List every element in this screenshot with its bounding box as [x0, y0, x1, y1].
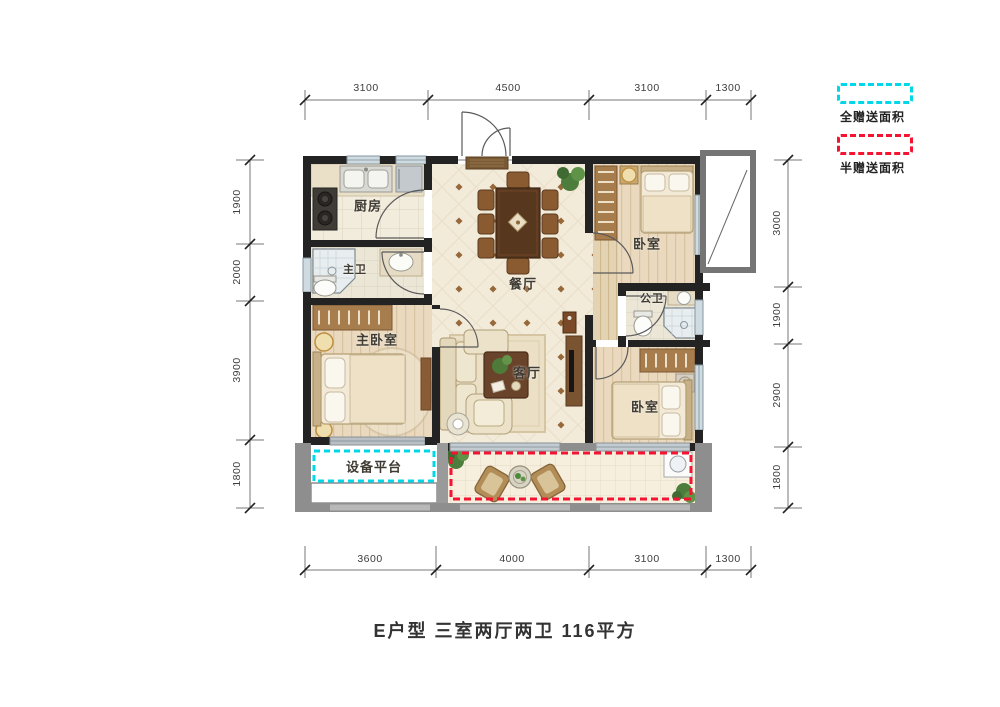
- room-label-dining: 餐厅: [509, 274, 537, 293]
- dim-left-2: 3900: [231, 357, 243, 382]
- bay-window: [703, 153, 753, 270]
- dim-right-3: 1800: [771, 464, 783, 489]
- room-label-equipment-platform: 设备平台: [346, 457, 402, 476]
- room-label-master-bath: 主卫: [343, 261, 367, 277]
- dim-bottom-2: 3100: [634, 553, 659, 565]
- dim-bottom-3: 1300: [715, 553, 740, 565]
- room-label-bedroom-top: 卧室: [633, 234, 661, 253]
- dim-top-0: 3100: [353, 82, 378, 94]
- dim-top-2: 3100: [634, 82, 659, 94]
- legend-half-gift-swatch: [837, 134, 913, 155]
- dim-bottom-0: 3600: [357, 553, 382, 565]
- legend-full-gift-label: 全赠送面积: [840, 108, 905, 125]
- dim-left-3: 1800: [231, 461, 243, 486]
- floor-plan-page: 厨房 主卫 主卧室 餐厅 客厅 卧室 公卫 卧室 设备平台 3100 4500 …: [0, 0, 1000, 707]
- room-label-kitchen: 厨房: [354, 196, 382, 215]
- dim-right-2: 2900: [771, 382, 783, 407]
- dim-left-0: 1900: [231, 189, 243, 214]
- dim-right-1: 1900: [771, 302, 783, 327]
- entrance-mat: [466, 157, 508, 169]
- legend-half-gift-label: 半赠送面积: [840, 159, 905, 176]
- floor-plan-canvas: [0, 0, 1000, 707]
- dim-right-0: 3000: [771, 210, 783, 235]
- room-label-master-bedroom: 主卧室: [356, 330, 398, 349]
- bedroom-top-furniture: [595, 166, 693, 240]
- room-label-living: 客厅: [513, 363, 541, 382]
- dim-top-1: 4500: [495, 82, 520, 94]
- room-label-public-bath: 公卫: [640, 290, 664, 306]
- legend-full-gift-swatch: [837, 83, 913, 104]
- dim-top-3: 1300: [715, 82, 740, 94]
- plan-title: E户型 三室两厅两卫 116平方: [373, 617, 636, 643]
- dim-bottom-1: 4000: [499, 553, 524, 565]
- room-label-bedroom-bottom: 卧室: [631, 397, 659, 416]
- dim-left-1: 2000: [231, 259, 243, 284]
